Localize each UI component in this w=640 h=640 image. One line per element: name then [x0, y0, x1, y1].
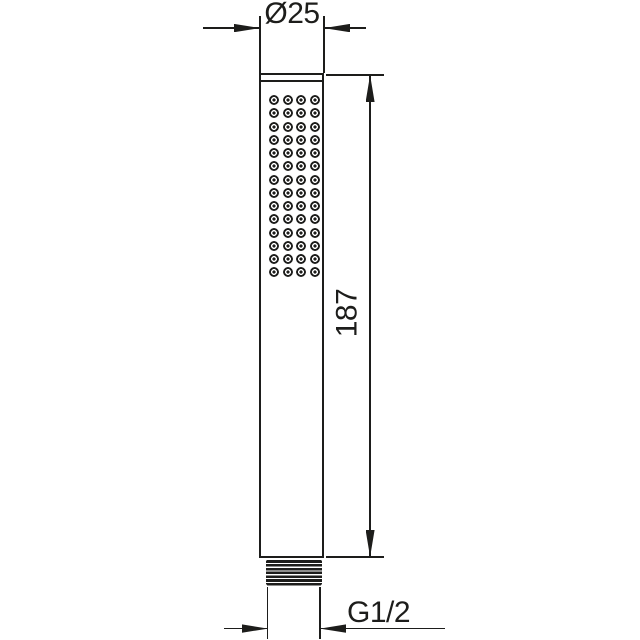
nozzle-dot — [310, 108, 320, 118]
nozzle-grid — [269, 95, 320, 277]
nozzle-dot — [283, 254, 293, 264]
nozzle-dot — [296, 188, 306, 198]
height-dim-arrow-bottom — [366, 530, 375, 557]
nozzle-dot — [269, 135, 279, 145]
drawing-canvas: Ø25 187 G1/2 — [0, 0, 640, 640]
height-dim-line — [369, 76, 370, 556]
nozzle-dot — [283, 161, 293, 171]
nozzle-dot — [283, 267, 293, 277]
nozzle-dot — [283, 95, 293, 105]
nozzle-dot — [296, 228, 306, 238]
nozzle-dot — [310, 241, 320, 251]
nozzle-dot — [269, 188, 279, 198]
nozzle-dot — [283, 148, 293, 158]
nozzle-dot — [269, 254, 279, 264]
nozzle-dot — [296, 122, 306, 132]
faceplate-top-line — [261, 80, 322, 82]
nozzle-dot — [269, 241, 279, 251]
nozzle-dot — [296, 135, 306, 145]
diameter-dimension-label: Ø25 — [232, 0, 352, 27]
nozzle-dot — [310, 228, 320, 238]
nozzle-dot — [283, 241, 293, 251]
nozzle-dot — [283, 122, 293, 132]
nozzle-dot — [296, 161, 306, 171]
thread-dim-arrow-left — [242, 624, 268, 632]
thread-extension-line-right — [319, 587, 320, 639]
nozzle-dot — [296, 201, 306, 211]
nozzle-dot — [296, 148, 306, 158]
nozzle-dot — [283, 135, 293, 145]
nozzle-dot — [296, 108, 306, 118]
nozzle-dot — [296, 214, 306, 224]
nozzle-dot — [269, 148, 279, 158]
nozzle-dot — [283, 201, 293, 211]
nozzle-dot — [283, 108, 293, 118]
nozzle-dot — [269, 267, 279, 277]
diameter-extension-line-right — [323, 16, 324, 73]
thread-dimension-label: G1/2 — [347, 599, 410, 626]
thread-section — [266, 559, 322, 586]
nozzle-dot — [283, 188, 293, 198]
nozzle-dot — [283, 214, 293, 224]
nozzle-dot — [296, 95, 306, 105]
nozzle-dot — [310, 161, 320, 171]
nozzle-dot — [310, 122, 320, 132]
nozzle-dot — [296, 175, 306, 185]
nozzle-dot — [310, 175, 320, 185]
height-extension-line-bottom — [326, 556, 384, 557]
nozzle-dot — [283, 175, 293, 185]
thread-extension-line-left — [267, 587, 268, 639]
nozzle-dot — [310, 201, 320, 211]
nozzle-dot — [310, 135, 320, 145]
nozzle-dot — [310, 188, 320, 198]
nozzle-dot — [269, 161, 279, 171]
nozzle-dot — [296, 241, 306, 251]
nozzle-dot — [269, 201, 279, 211]
nozzle-dot — [269, 122, 279, 132]
nozzle-dot — [310, 148, 320, 158]
nozzle-dot — [296, 254, 306, 264]
nozzle-dot — [283, 228, 293, 238]
nozzle-dot — [269, 95, 279, 105]
nozzle-dot — [269, 228, 279, 238]
height-extension-line-top — [326, 74, 384, 75]
nozzle-dot — [269, 108, 279, 118]
height-dimension-label: 187 — [334, 289, 361, 338]
nozzle-dot — [310, 254, 320, 264]
height-dim-arrow-top — [366, 75, 375, 102]
nozzle-dot — [296, 267, 306, 277]
nozzle-dot — [310, 214, 320, 224]
nozzle-dot — [310, 95, 320, 105]
nozzle-dot — [310, 267, 320, 277]
nozzle-dot — [269, 175, 279, 185]
nozzle-dot — [269, 214, 279, 224]
diameter-extension-line-left — [259, 16, 260, 73]
thread-dim-arrow-right — [320, 624, 346, 632]
